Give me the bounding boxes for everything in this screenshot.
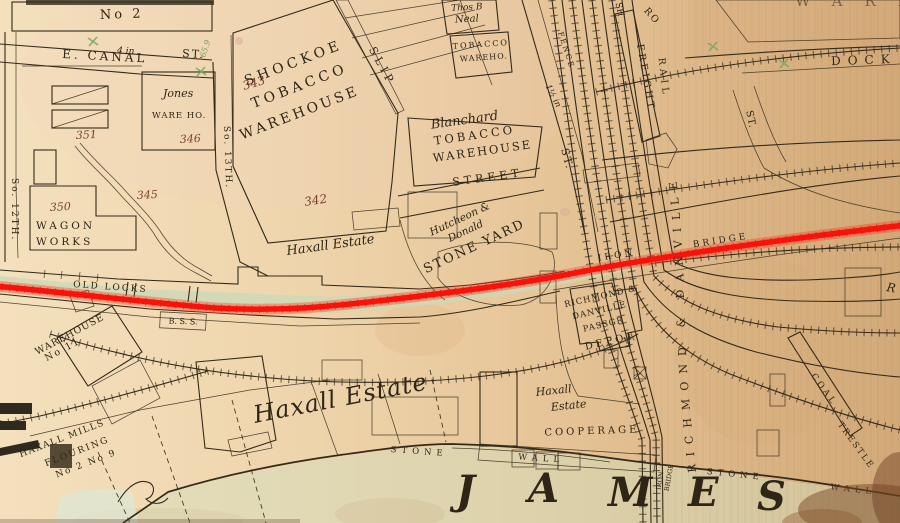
building-dark-2: [0, 421, 26, 430]
label-james-letter-m: M: [606, 469, 654, 516]
label-building-no2: No 2: [100, 6, 144, 23]
label-works: WORKS: [36, 236, 93, 248]
label-s12th-street: So. 12TH.: [9, 178, 19, 241]
label-jones: Jones: [161, 87, 194, 100]
building-dark-1: [0, 403, 32, 414]
label-wagon: WAGON: [36, 220, 95, 232]
label-neal: Neal: [454, 13, 479, 25]
label-parcel-351: 351: [75, 128, 97, 142]
label-jones-wareho: WARE HO.: [152, 111, 206, 121]
label-parcel-350: 350: [49, 200, 71, 214]
label-thos-b: Thos B: [451, 2, 483, 14]
label-parcel-345: 345: [136, 188, 158, 202]
label-bss: B. S. S.: [168, 316, 197, 326]
map-canvas: No 2 E. CANAL 4 in ST. So. 12TH. So. 13T…: [0, 0, 900, 523]
label-parcel-346: 346: [179, 132, 201, 146]
label-pipe-4in: 4 in: [116, 46, 135, 57]
map-viewport: No 2 E. CANAL 4 in ST. So. 12TH. So. 13T…: [0, 0, 900, 523]
label-james-letter-a: A: [524, 465, 559, 512]
